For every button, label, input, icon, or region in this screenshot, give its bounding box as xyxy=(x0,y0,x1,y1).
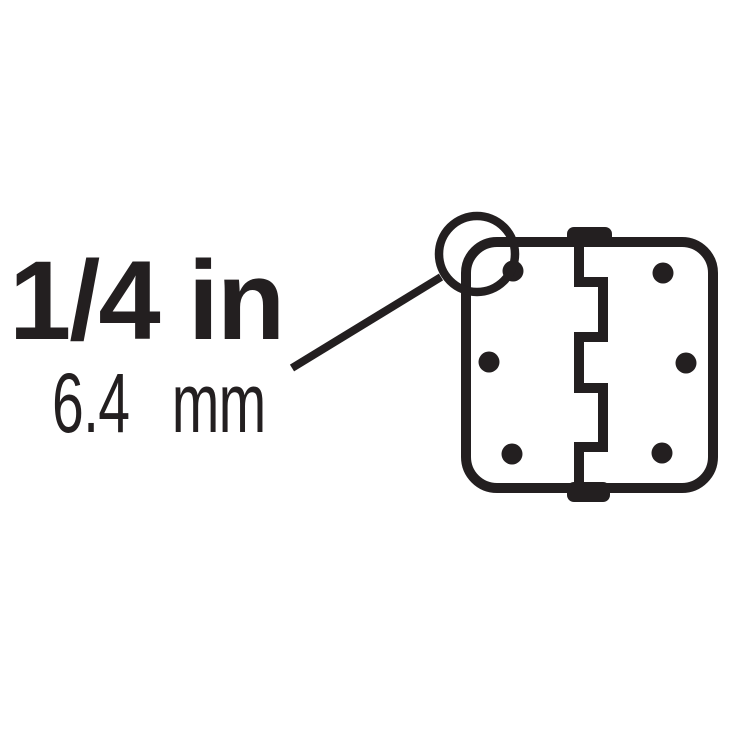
diagram-canvas: 1/4 in 6.4 mm xyxy=(0,0,736,736)
screw-hole-middle-left xyxy=(479,352,500,373)
screw-hole-middle-right xyxy=(676,353,697,374)
screw-hole-top-right xyxy=(653,263,674,284)
hinge-diagram xyxy=(0,0,736,736)
screw-hole-bottom-right xyxy=(652,443,673,464)
leader-line xyxy=(292,277,441,368)
hinge-pin-bottom-cap-icon xyxy=(567,482,610,502)
hinge-knuckle-line xyxy=(579,242,603,488)
screw-hole-bottom-left xyxy=(502,444,523,465)
hinge-pin-top-cap-icon xyxy=(567,227,612,247)
